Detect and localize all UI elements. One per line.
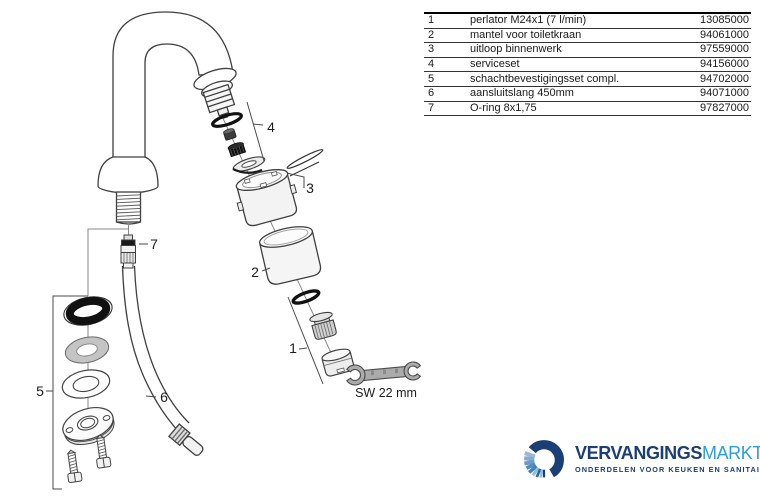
threaded-shaft (117, 192, 141, 224)
base-dome (98, 157, 158, 193)
insert-pin (286, 148, 324, 171)
part-description: serviceset (468, 57, 677, 72)
part-description: O-ring 8x1,75 (468, 101, 677, 116)
wrench-size-label: SW 22 mm (355, 386, 417, 400)
connection-hose (123, 266, 207, 459)
vervangingsmarkt-logo: VERVANGINGSMARKT ONDERDELEN VOOR KEUKEN … (520, 436, 760, 484)
table-row: 5 schachtbevestigingsset compl. 94702000 (424, 72, 751, 87)
table-row: 4 serviceset 94156000 (424, 57, 751, 72)
logo-brand-light: MARKT (702, 443, 760, 463)
part-number: 94061000 (677, 28, 751, 43)
logo-text: VERVANGINGSMARKT ONDERDELEN VOOR KEUKEN … (575, 436, 760, 474)
white-washer (60, 366, 113, 402)
part-ref: 5 (424, 72, 468, 87)
callout-3: 3 (306, 180, 314, 196)
part-description: mantel voor toiletkraan (468, 28, 677, 43)
perlator-parts (288, 288, 355, 384)
o-ring-small (292, 288, 320, 305)
mounting-set-parts (46, 293, 119, 489)
callout-1: 1 (289, 340, 297, 356)
part-number: 94156000 (677, 57, 751, 72)
part-description: schachtbevestigingsset compl. (468, 72, 677, 87)
part-number: 13085000 (677, 13, 751, 28)
hose-end-fitting (169, 424, 206, 459)
table-row: 1 perlator M24x1 (7 l/min) 13085000 (424, 13, 751, 28)
part-description: perlator M24x1 (7 l/min) (468, 13, 677, 28)
faucet-spout (113, 12, 239, 158)
callout-6: 6 (160, 389, 168, 405)
gray-washer (63, 333, 111, 367)
o-ring-connector (121, 235, 148, 268)
sleeve-part (258, 223, 322, 286)
part-number: 97559000 (677, 43, 751, 58)
callout-5: 5 (36, 383, 44, 399)
part-ref: 3 (424, 43, 468, 58)
ribbed-seal (227, 141, 246, 157)
table-row: 6 aansluitslang 450mm 94071000 (424, 86, 751, 101)
faucet-base (98, 157, 158, 224)
rubber-washer (61, 293, 115, 330)
part-ref: 2 (424, 28, 468, 43)
table-row: 3 uitloop binnenwerk 97559000 (424, 43, 751, 58)
table-row: 7 O-ring 8x1,75 97827000 (424, 101, 751, 116)
callout-7: 7 (150, 236, 158, 252)
part-description: aansluitslang 450mm (468, 86, 677, 101)
mounting-flange (59, 402, 119, 451)
valve-cap (223, 128, 237, 141)
logo-swirl-icon (520, 436, 568, 484)
part-ref: 6 (424, 86, 468, 101)
callout-4-leader (247, 102, 264, 161)
callout-4: 4 (267, 119, 275, 135)
wrench-icon (347, 362, 421, 385)
logo-tagline: ONDERDELEN VOOR KEUKEN EN SANITAIR (575, 465, 760, 474)
parts-table: 1 perlator M24x1 (7 l/min) 13085000 2 ma… (424, 12, 751, 116)
callout-6-leader (146, 396, 156, 397)
part-number: 94702000 (677, 72, 751, 87)
logo-brand: VERVANGINGSMARKT (575, 445, 760, 462)
aerator-housing (321, 347, 355, 377)
part-ref: 4 (424, 57, 468, 72)
part-description: uitloop binnenwerk (468, 43, 677, 58)
o-ring-large (211, 111, 242, 129)
part-ref: 1 (424, 13, 468, 28)
table-row: 2 mantel voor toiletkraan 94061000 (424, 28, 751, 43)
part-ref: 7 (424, 101, 468, 116)
mounting-screw (64, 449, 82, 483)
part-number: 94071000 (677, 86, 751, 101)
logo-brand-bold: VERVANGINGS (575, 443, 702, 463)
part-number: 97827000 (677, 101, 751, 116)
callout-2: 2 (251, 264, 259, 280)
